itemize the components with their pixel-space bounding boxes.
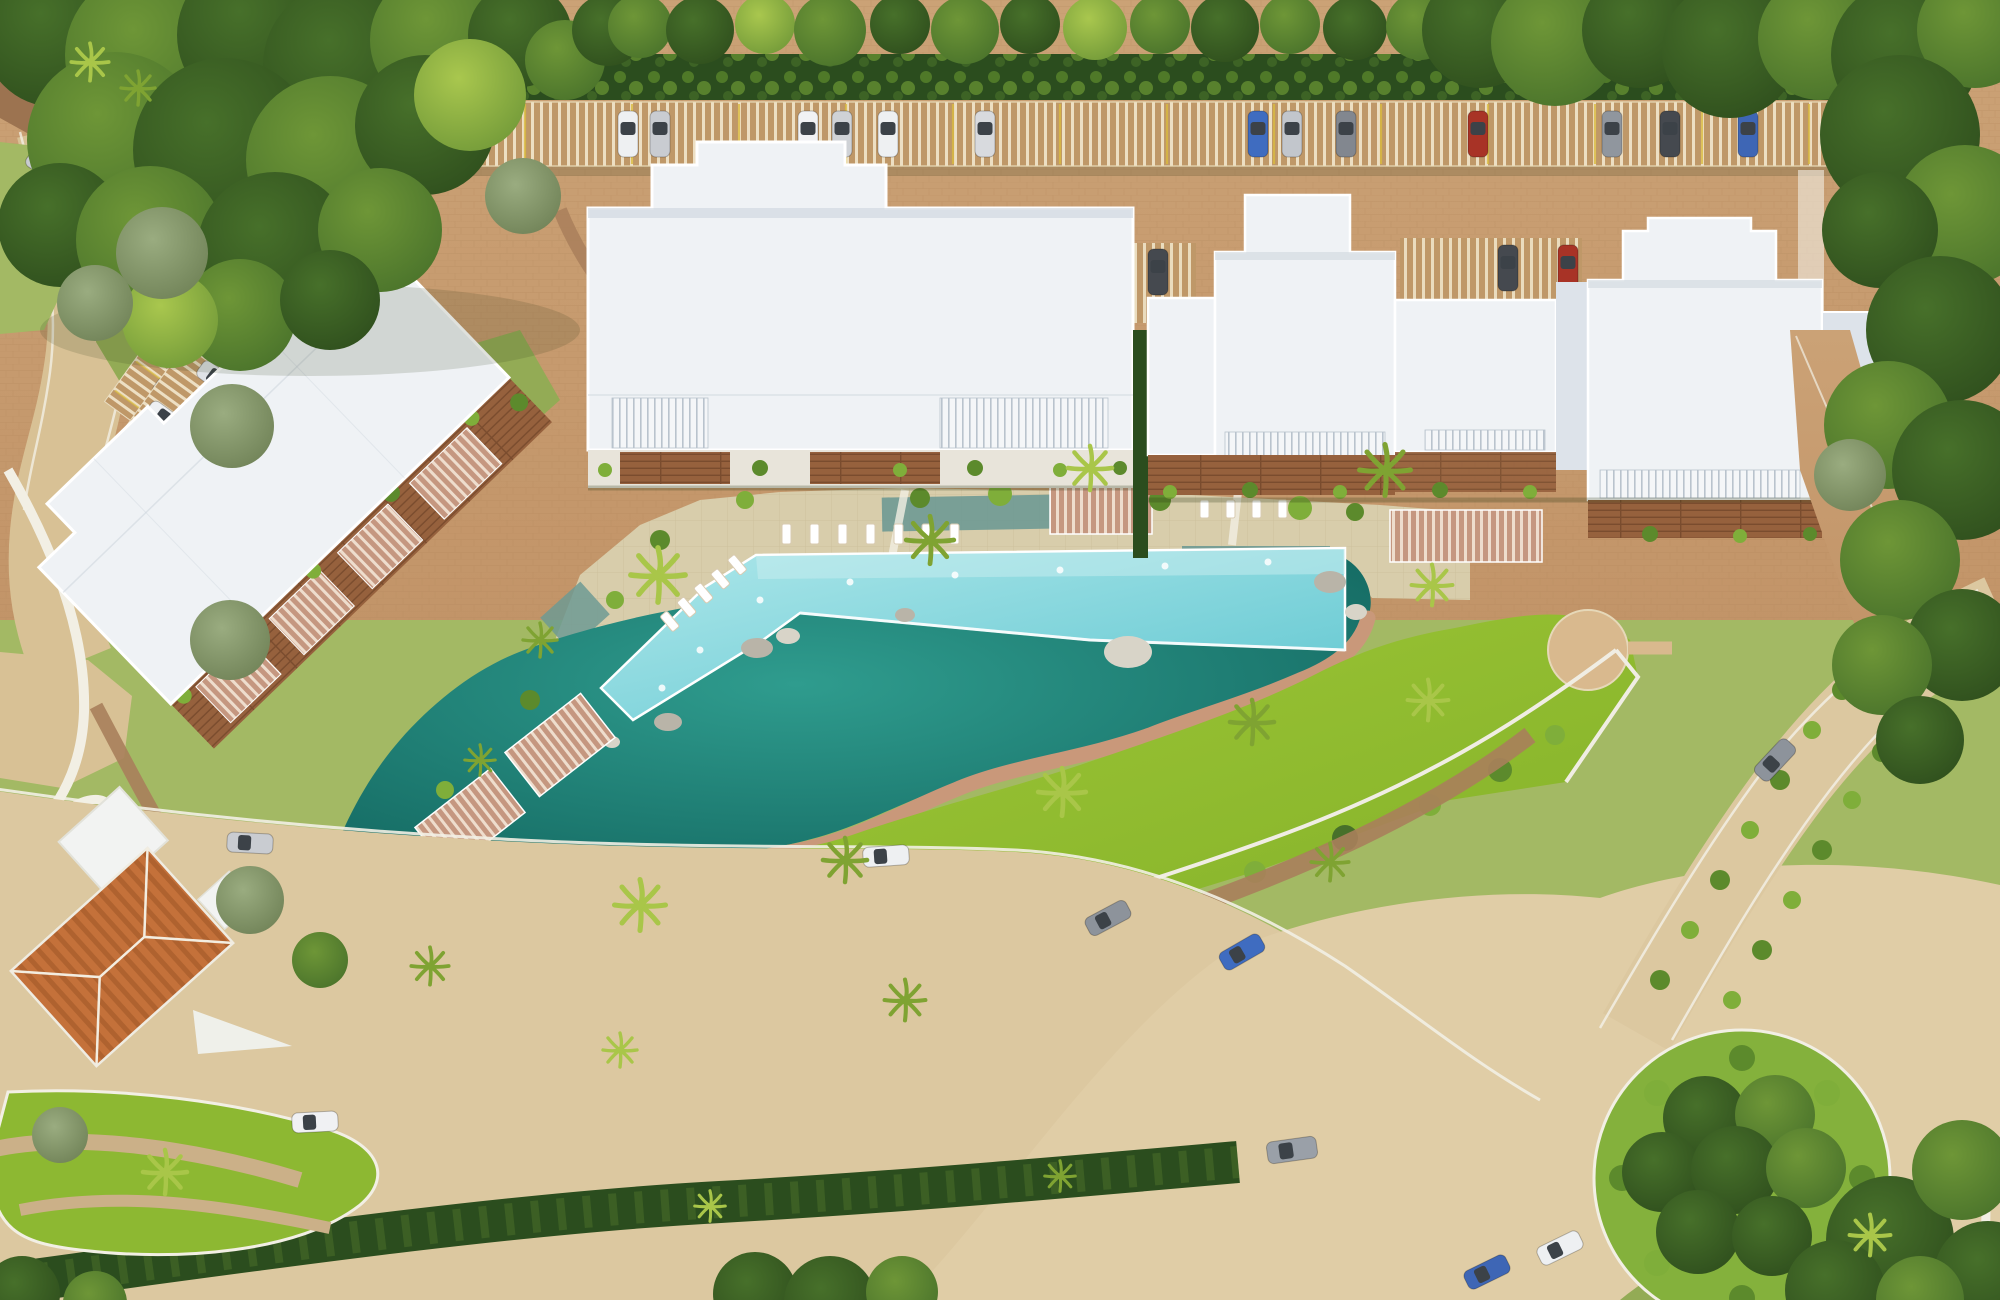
car xyxy=(1336,111,1356,157)
right-parapet xyxy=(1588,280,1822,288)
right-balcony-rail xyxy=(1225,432,1385,456)
car xyxy=(1660,111,1680,157)
car xyxy=(862,844,909,867)
central-balcony-rail xyxy=(612,398,708,448)
car xyxy=(618,111,638,157)
car xyxy=(975,111,995,157)
reflecting-pond xyxy=(882,494,1063,531)
aerial-site-render xyxy=(0,0,2000,1300)
central-terrace-deck xyxy=(810,452,940,484)
car xyxy=(878,111,898,157)
car xyxy=(1738,111,1758,157)
right-terrace-deck xyxy=(1588,500,1822,538)
car xyxy=(1602,111,1622,157)
lot-right-slats xyxy=(1400,238,1582,300)
right-balcony-rail xyxy=(1425,430,1545,450)
cabana-pergola xyxy=(1390,510,1542,562)
right-block-c xyxy=(1395,300,1556,452)
car xyxy=(1148,249,1168,295)
right-parapet xyxy=(1215,252,1395,260)
car xyxy=(1498,245,1518,291)
tree-cluster-bottom-middle xyxy=(713,1252,938,1300)
car xyxy=(1468,111,1488,157)
car xyxy=(1248,111,1268,157)
gap-hedge xyxy=(1133,330,1148,558)
car xyxy=(227,832,274,854)
car xyxy=(1282,111,1302,157)
right-link xyxy=(1556,282,1588,470)
right-terrace-deck xyxy=(1148,455,1395,495)
central-balcony-rail xyxy=(940,398,1108,448)
site-plan-canvas xyxy=(0,0,2000,1300)
car xyxy=(650,111,670,157)
central-terrace-deck xyxy=(620,452,730,484)
central-parapet xyxy=(588,208,1133,218)
right-balcony-rail xyxy=(1600,470,1800,498)
right-wing-a xyxy=(1148,298,1215,455)
car xyxy=(292,1111,339,1133)
